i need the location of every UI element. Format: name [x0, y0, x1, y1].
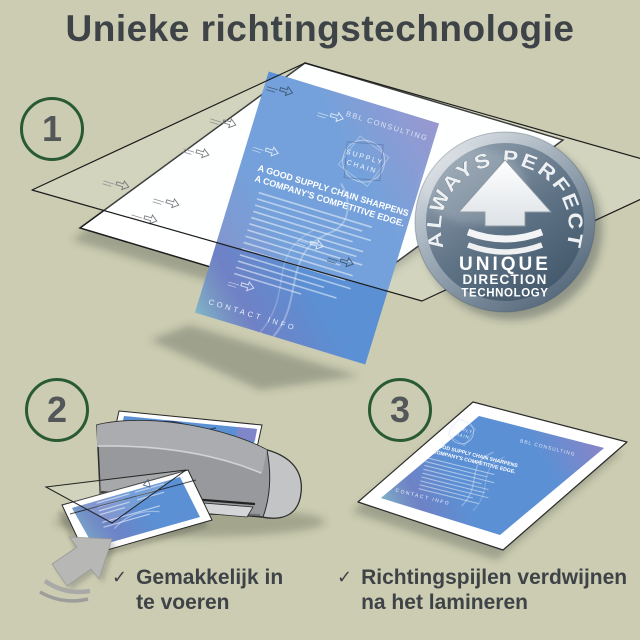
page-title: Unieke richtingstechnologie — [0, 8, 640, 50]
step-2-number: 2 — [25, 378, 89, 442]
step-1-number: 1 — [20, 97, 84, 161]
step-3-label: 3 — [390, 389, 410, 431]
badge-word-direction: DIRECTION — [462, 272, 547, 287]
direction-arrow-icon — [40, 537, 116, 601]
infographic-stage: BBL CONSULTING SUPPLY CHAIN A GOOD SUPPL… — [0, 0, 640, 640]
badge-word-technology: TECHNOLOGY — [461, 288, 548, 300]
step-3-number: 3 — [368, 378, 432, 442]
step-2-label: 2 — [47, 389, 67, 431]
caption-arrows-disappear: ✓ Richtingspijlen verdwijnen na het lami… — [337, 565, 627, 615]
checkmark-icon: ✓ — [112, 565, 127, 589]
caption-easy-feed: ✓ Gemakkelijk in te voeren — [112, 565, 283, 615]
exiting-pouch — [46, 470, 212, 563]
caption-arrows-line2: na het lamineren — [361, 591, 528, 614]
illustration-layer: BBL CONSULTING SUPPLY CHAIN A GOOD SUPPL… — [0, 0, 640, 640]
caption-easy-feed-line1: Gemakkelijk in — [136, 566, 283, 589]
checkmark-icon: ✓ — [337, 565, 352, 589]
caption-arrows-line1: Richtingspijlen verdwijnen — [361, 566, 627, 589]
step-1-label: 1 — [42, 108, 62, 150]
caption-easy-feed-line2: te voeren — [136, 591, 229, 614]
